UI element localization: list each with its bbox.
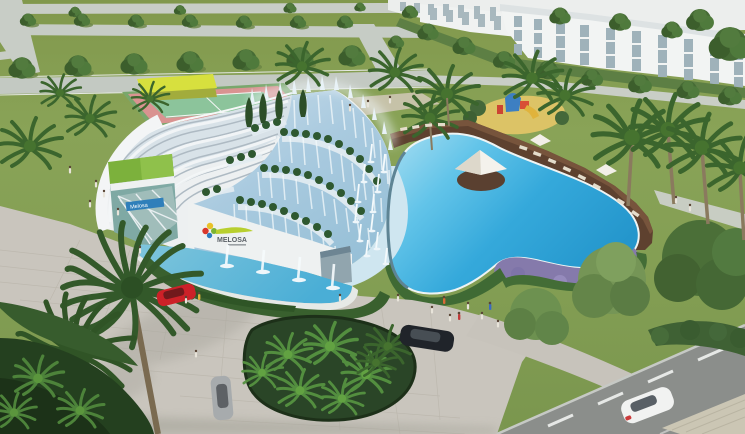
svg-text:MELOSA: MELOSA	[217, 237, 247, 244]
